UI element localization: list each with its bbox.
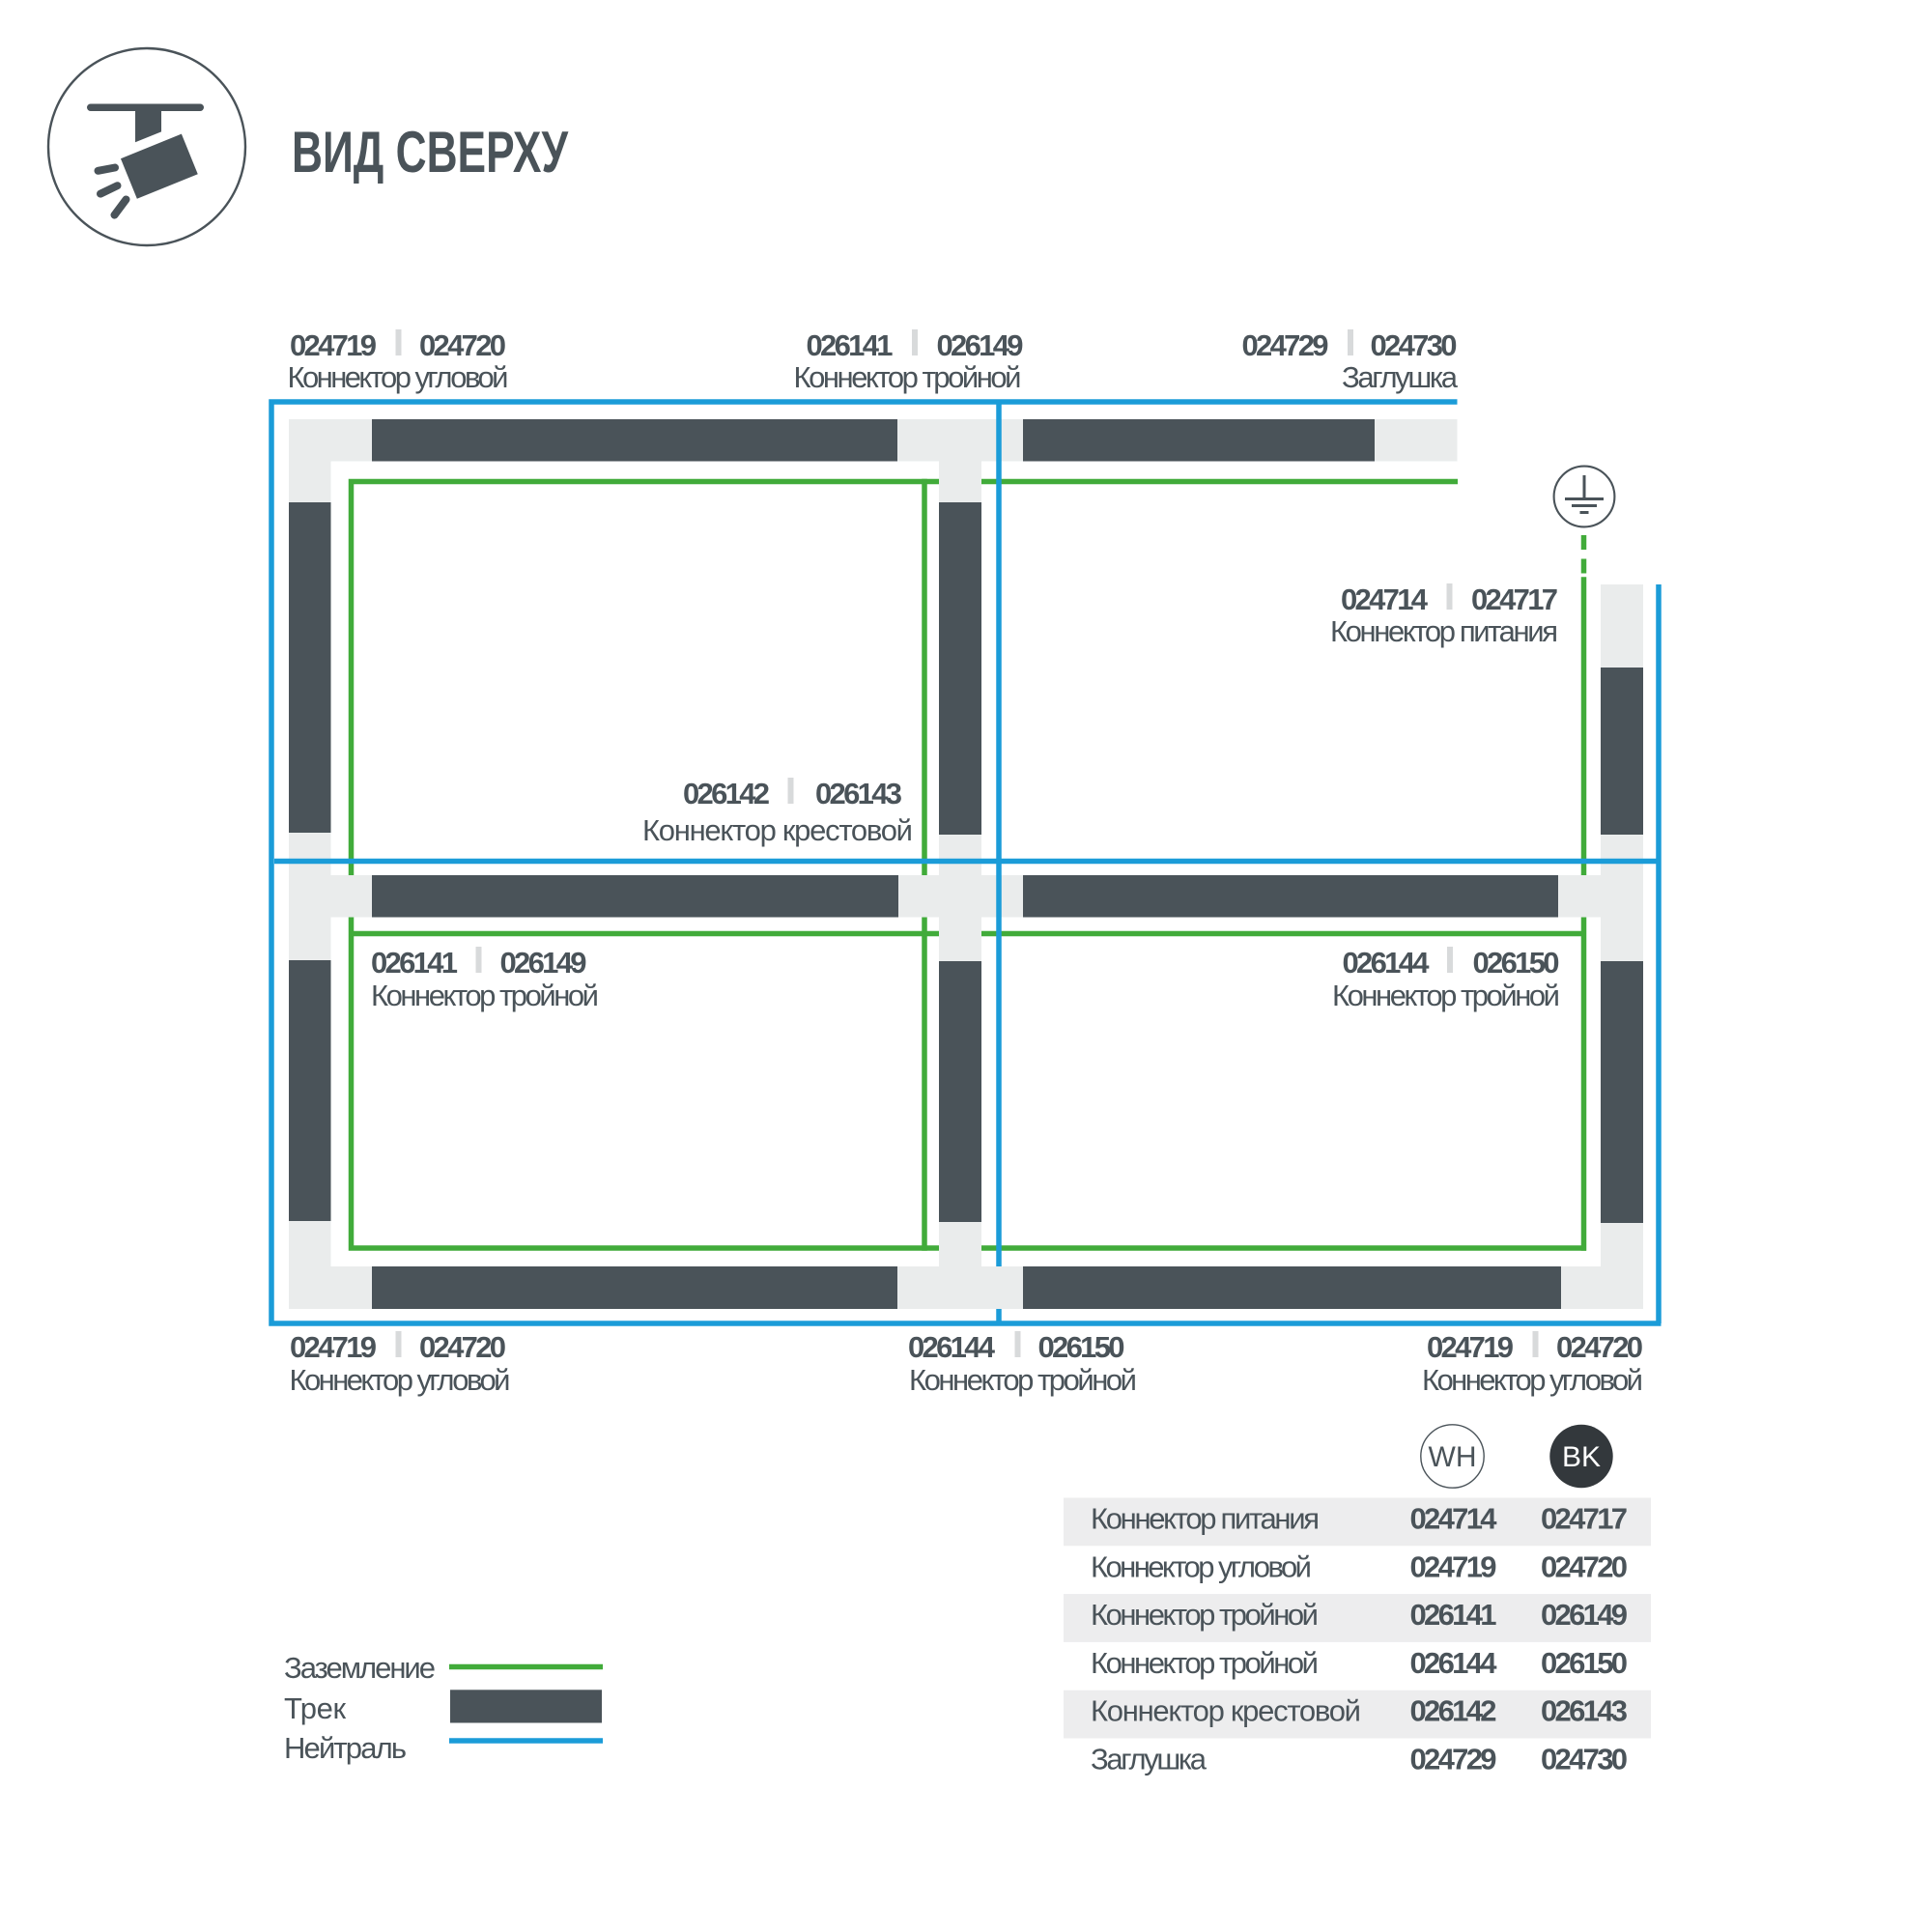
svg-text:026142: 026142 bbox=[683, 777, 770, 810]
svg-text:Коннектор питания: Коннектор питания bbox=[1091, 1502, 1320, 1536]
svg-text:026144: 026144 bbox=[1410, 1646, 1498, 1680]
svg-text:024719: 024719 bbox=[1427, 1330, 1514, 1364]
svg-text:Коннектор тройной: Коннектор тройной bbox=[909, 1363, 1137, 1397]
svg-text:Трек: Трек bbox=[284, 1691, 346, 1725]
svg-text:ВИД СВЕРХУ: ВИД СВЕРХУ bbox=[292, 120, 568, 185]
svg-text:Коннектор угловой: Коннектор угловой bbox=[288, 360, 509, 394]
svg-text:Коннектор тройной: Коннектор тройной bbox=[1091, 1598, 1319, 1632]
svg-text:Нейтраль: Нейтраль bbox=[284, 1731, 407, 1765]
svg-text:024717: 024717 bbox=[1471, 582, 1558, 616]
svg-text:026141: 026141 bbox=[1410, 1598, 1497, 1632]
svg-text:026144: 026144 bbox=[1343, 946, 1431, 980]
svg-text:Заземление: Заземление bbox=[284, 1651, 436, 1685]
svg-text:Коннектор тройной: Коннектор тройной bbox=[1332, 979, 1560, 1012]
svg-text:026150: 026150 bbox=[1541, 1646, 1628, 1680]
svg-text:024714: 024714 bbox=[1410, 1502, 1498, 1536]
svg-text:Коннектор питания: Коннектор питания bbox=[1330, 614, 1558, 648]
svg-text:024720: 024720 bbox=[1556, 1330, 1643, 1364]
svg-text:024729: 024729 bbox=[1410, 1743, 1497, 1776]
svg-text:024719: 024719 bbox=[290, 328, 377, 362]
svg-text:024720: 024720 bbox=[1541, 1549, 1628, 1583]
svg-text:024717: 024717 bbox=[1541, 1502, 1628, 1536]
svg-text:026141: 026141 bbox=[371, 946, 458, 980]
svg-text:026141: 026141 bbox=[807, 328, 894, 362]
svg-text:026143: 026143 bbox=[815, 777, 902, 810]
svg-text:024729: 024729 bbox=[1242, 328, 1329, 362]
svg-text:026150: 026150 bbox=[1473, 946, 1560, 980]
svg-text:WH: WH bbox=[1429, 1441, 1477, 1473]
svg-text:Заглушка: Заглушка bbox=[1091, 1743, 1207, 1776]
svg-text:026143: 026143 bbox=[1541, 1694, 1628, 1728]
svg-text:024714: 024714 bbox=[1341, 582, 1429, 616]
svg-text:Коннектор тройной: Коннектор тройной bbox=[1091, 1646, 1319, 1680]
svg-text:BK: BK bbox=[1562, 1441, 1601, 1473]
svg-text:026150: 026150 bbox=[1038, 1330, 1125, 1364]
svg-text:024730: 024730 bbox=[1541, 1743, 1628, 1776]
svg-text:Заглушка: Заглушка bbox=[1342, 360, 1459, 394]
svg-text:Коннектор тройной: Коннектор тройной bbox=[794, 360, 1022, 394]
svg-text:026149: 026149 bbox=[1541, 1598, 1628, 1632]
svg-text:026149: 026149 bbox=[500, 946, 587, 980]
svg-text:Коннектор крестовой: Коннектор крестовой bbox=[642, 813, 913, 847]
svg-text:024730: 024730 bbox=[1371, 328, 1458, 362]
svg-text:024719: 024719 bbox=[1410, 1549, 1497, 1583]
svg-text:026142: 026142 bbox=[1410, 1694, 1497, 1728]
svg-text:024720: 024720 bbox=[419, 1330, 506, 1364]
svg-text:024720: 024720 bbox=[419, 328, 506, 362]
svg-text:024719: 024719 bbox=[290, 1330, 377, 1364]
svg-text:Коннектор угловой: Коннектор угловой bbox=[1422, 1363, 1643, 1397]
svg-text:Коннектор угловой: Коннектор угловой bbox=[1091, 1549, 1312, 1583]
svg-text:026144: 026144 bbox=[908, 1330, 996, 1364]
svg-text:026149: 026149 bbox=[937, 328, 1024, 362]
svg-text:Коннектор тройной: Коннектор тройной bbox=[371, 979, 599, 1012]
svg-text:Коннектор крестовой: Коннектор крестовой bbox=[1091, 1694, 1361, 1728]
svg-text:Коннектор угловой: Коннектор угловой bbox=[290, 1363, 511, 1397]
